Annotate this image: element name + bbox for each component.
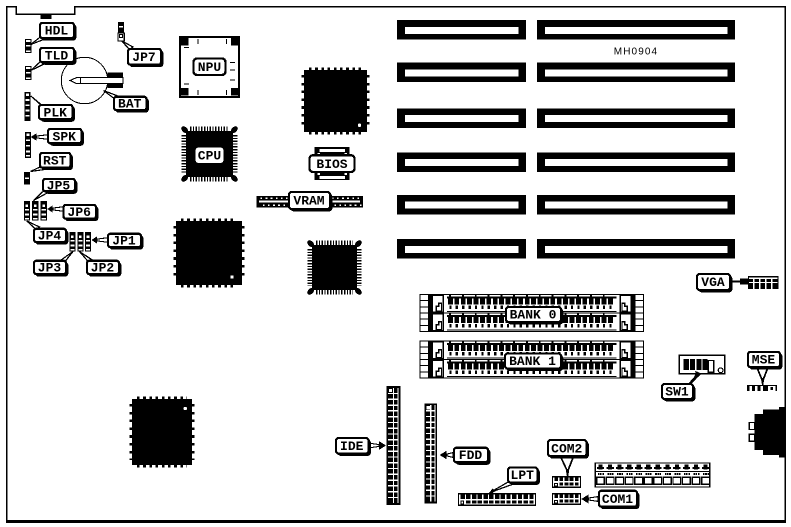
- svg-text:LPT: LPT: [511, 468, 535, 483]
- svg-text:SW1: SW1: [665, 385, 689, 400]
- svg-text:CPU: CPU: [198, 149, 221, 164]
- svg-text:JP2: JP2: [91, 261, 115, 276]
- svg-text:BAT: BAT: [118, 97, 142, 112]
- svg-text:COM2: COM2: [551, 441, 582, 456]
- svg-text:COM1: COM1: [602, 492, 633, 507]
- svg-text:MH0904: MH0904: [614, 47, 658, 58]
- svg-text:BANK 0: BANK 0: [510, 308, 557, 323]
- svg-text:BANK 1: BANK 1: [509, 354, 556, 369]
- svg-text:PLK: PLK: [44, 105, 68, 120]
- svg-text:JP5: JP5: [47, 178, 71, 193]
- svg-text:MSE: MSE: [752, 353, 776, 368]
- svg-text:RST: RST: [43, 154, 67, 169]
- svg-text:FDD: FDD: [459, 448, 483, 463]
- svg-text:JP4: JP4: [38, 229, 62, 244]
- svg-text:JP3: JP3: [38, 261, 62, 276]
- svg-text:HDL: HDL: [45, 24, 69, 39]
- svg-text:JP1: JP1: [112, 234, 136, 249]
- svg-text:JP6: JP6: [68, 205, 92, 220]
- svg-text:VRAM: VRAM: [293, 194, 324, 209]
- svg-text:VGA: VGA: [701, 275, 725, 290]
- svg-text:NPU: NPU: [198, 60, 221, 75]
- svg-text:JP7: JP7: [132, 50, 155, 65]
- svg-text:SPK: SPK: [53, 129, 77, 144]
- svg-text:TLD: TLD: [45, 48, 69, 63]
- svg-text:BIOS: BIOS: [316, 157, 347, 172]
- svg-text:IDE: IDE: [340, 439, 364, 454]
